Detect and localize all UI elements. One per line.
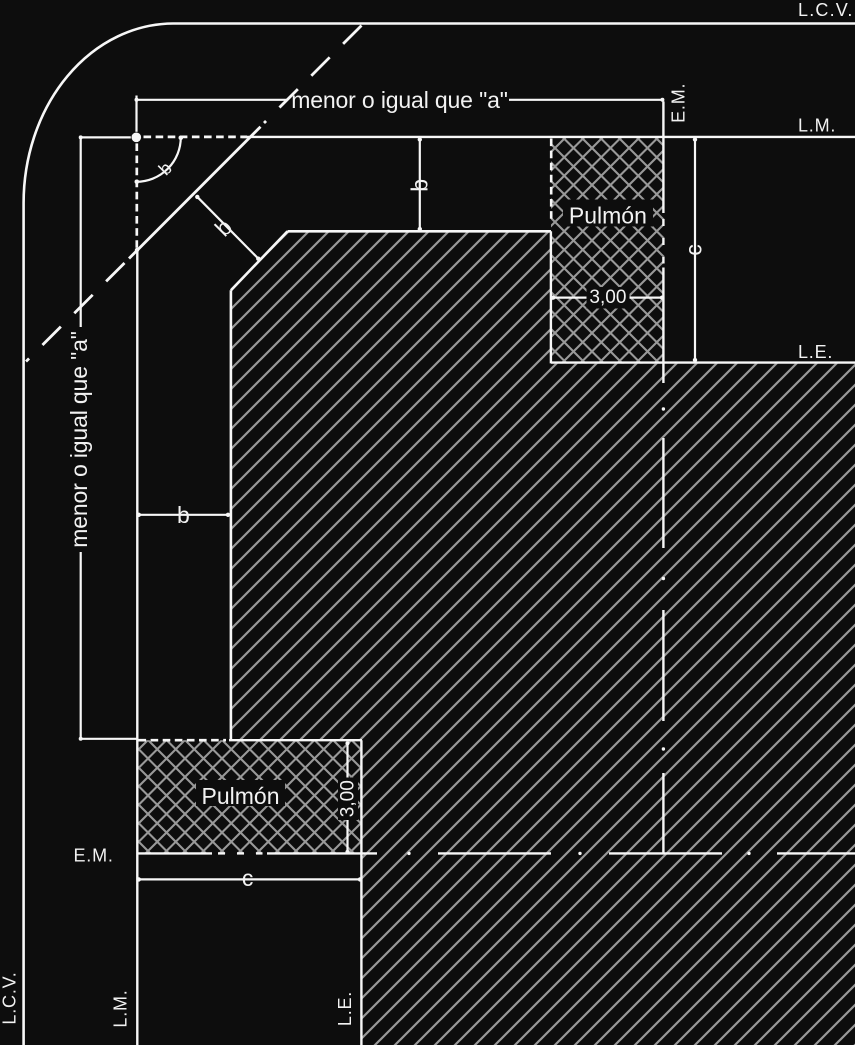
svg-text:L.C.V.: L.C.V. xyxy=(0,971,19,1024)
svg-text:c: c xyxy=(242,865,254,891)
svg-text:menor o igual que "a": menor o igual que "a" xyxy=(291,87,508,113)
svg-text:Pulmón: Pulmón xyxy=(569,203,647,229)
svg-text:E.M.: E.M. xyxy=(669,83,689,123)
svg-text:b: b xyxy=(406,179,432,192)
svg-text:L.E.: L.E. xyxy=(335,991,355,1026)
svg-text:L.M.: L.M. xyxy=(111,989,131,1027)
svg-text:L.C.V.: L.C.V. xyxy=(798,0,854,20)
svg-text:c: c xyxy=(681,244,707,256)
svg-text:L.M.: L.M. xyxy=(798,115,836,135)
svg-text:3,00: 3,00 xyxy=(338,780,359,817)
svg-text:E.M.: E.M. xyxy=(74,846,114,866)
svg-text:L.E.: L.E. xyxy=(798,342,833,362)
svg-text:b: b xyxy=(177,502,190,528)
svg-text:menor o igual que "a": menor o igual que "a" xyxy=(66,331,92,548)
svg-text:Pulmón: Pulmón xyxy=(202,783,280,809)
svg-text:3,00: 3,00 xyxy=(589,287,626,308)
